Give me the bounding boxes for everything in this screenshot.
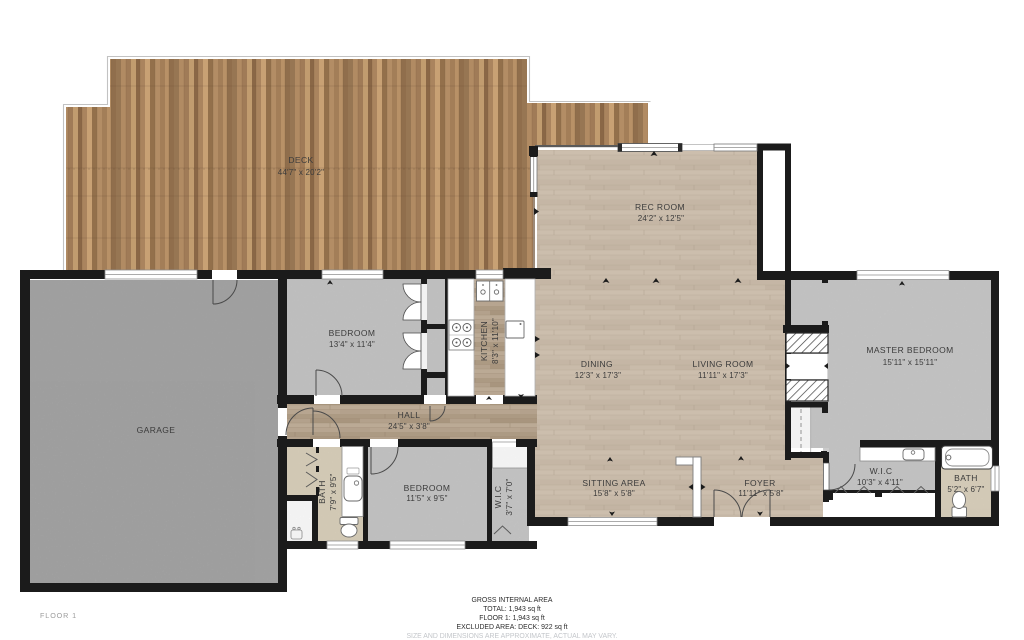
svg-text:SITTING AREA: SITTING AREA bbox=[582, 478, 645, 488]
svg-text:10'3" x 4'11": 10'3" x 4'11" bbox=[857, 478, 903, 487]
svg-text:13'4" x 11'4": 13'4" x 11'4" bbox=[329, 340, 375, 349]
svg-text:15'11" x 15'11": 15'11" x 15'11" bbox=[883, 358, 938, 367]
svg-text:BATH: BATH bbox=[317, 480, 327, 504]
svg-text:W.I.C: W.I.C bbox=[870, 466, 893, 476]
svg-text:7'9" x 9'5": 7'9" x 9'5" bbox=[329, 473, 338, 510]
svg-text:FOYER: FOYER bbox=[744, 478, 775, 488]
svg-text:24'2" x 12'5": 24'2" x 12'5" bbox=[638, 214, 684, 223]
svg-text:11'5" x 9'5": 11'5" x 9'5" bbox=[406, 494, 447, 503]
svg-text:SIZE AND DIMENSIONS ARE APPROX: SIZE AND DIMENSIONS ARE APPROXIMATE, ACT… bbox=[406, 633, 617, 640]
svg-text:3'7" x 7'0": 3'7" x 7'0" bbox=[505, 478, 514, 515]
svg-text:FLOOR 1: FLOOR 1 bbox=[40, 611, 77, 620]
svg-text:W.I.C: W.I.C bbox=[493, 486, 503, 509]
svg-text:BATH: BATH bbox=[954, 473, 978, 483]
svg-text:REC ROOM: REC ROOM bbox=[635, 202, 685, 212]
svg-text:24'5" x 3'8": 24'5" x 3'8" bbox=[388, 422, 430, 431]
svg-text:11'11" x 5'8": 11'11" x 5'8" bbox=[738, 489, 783, 498]
svg-text:LIVING ROOM: LIVING ROOM bbox=[692, 359, 753, 369]
svg-text:5'2" x 6'7": 5'2" x 6'7" bbox=[947, 485, 984, 494]
svg-text:KITCHEN: KITCHEN bbox=[479, 321, 489, 361]
svg-text:15'8" x 5'8": 15'8" x 5'8" bbox=[593, 489, 635, 498]
svg-text:DECK: DECK bbox=[288, 155, 313, 165]
svg-text:44'7" x 20'2": 44'7" x 20'2" bbox=[278, 168, 324, 177]
svg-text:GARAGE: GARAGE bbox=[137, 425, 176, 435]
svg-text:TOTAL: 1,943 sq ft: TOTAL: 1,943 sq ft bbox=[483, 606, 541, 613]
svg-text:MASTER BEDROOM: MASTER BEDROOM bbox=[866, 345, 953, 355]
svg-text:BEDROOM: BEDROOM bbox=[329, 328, 376, 338]
svg-text:11'11" x 17'3": 11'11" x 17'3" bbox=[698, 371, 748, 380]
svg-text:HALL: HALL bbox=[398, 410, 421, 420]
svg-text:BEDROOM: BEDROOM bbox=[404, 483, 451, 493]
svg-text:FLOOR 1: 1,943 sq ft: FLOOR 1: 1,943 sq ft bbox=[479, 615, 545, 622]
svg-text:GROSS INTERNAL AREA: GROSS INTERNAL AREA bbox=[472, 597, 553, 604]
svg-text:EXCLUDED AREA: DECK: 922 sq ft: EXCLUDED AREA: DECK: 922 sq ft bbox=[456, 624, 567, 631]
svg-text:DINING: DINING bbox=[581, 359, 613, 369]
svg-text:8'3" x 11'10": 8'3" x 11'10" bbox=[491, 318, 500, 364]
svg-text:12'3" x 17'3": 12'3" x 17'3" bbox=[575, 371, 621, 380]
